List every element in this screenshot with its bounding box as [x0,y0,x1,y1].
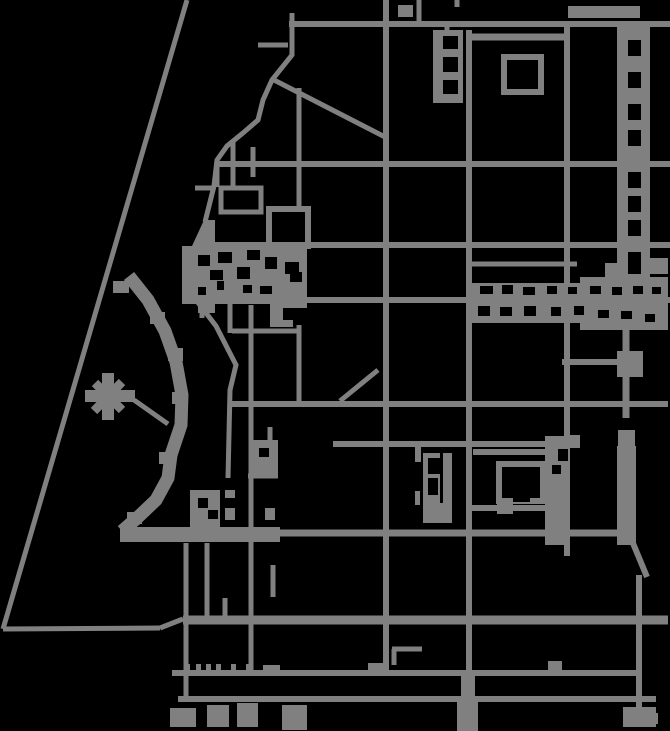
block-gap [628,172,641,188]
block-gap [574,306,584,315]
building-block [120,527,280,542]
block-gap [551,307,561,316]
building-block [461,673,475,700]
block-gap [428,458,440,474]
block-gap [198,287,206,295]
building-block [265,508,275,520]
building-block [605,263,618,287]
block-gap [247,250,260,260]
block-gap [217,281,224,290]
building-block [497,504,513,514]
building-block [237,703,258,727]
building-block [206,664,211,673]
block-gap [590,286,601,294]
block-gap [652,287,661,294]
building-block [190,490,220,528]
block-gap [598,310,609,318]
street-map [0,0,670,731]
building-block [567,435,580,448]
building-block [263,665,280,673]
block-gap [440,453,443,503]
block-gap [265,257,277,269]
block-gap [260,286,272,294]
block-gap [218,252,232,263]
building-block [207,705,229,727]
map-viewport [0,0,670,731]
block-gap [480,286,493,294]
block-gap [428,478,438,495]
building-block [618,430,635,446]
block-gap [628,104,641,120]
block-gap [513,495,530,502]
block-gap [621,311,632,319]
building-block [168,348,183,361]
building-block [246,664,251,673]
building-block [225,490,235,498]
block-gap [552,465,561,474]
block-gap [443,36,458,49]
block-gap [628,40,641,56]
block-gap [259,448,269,457]
building-block [623,707,656,727]
block-gap [628,72,641,88]
block-gap [210,270,223,280]
building-block [648,258,668,274]
block-gap [443,80,458,94]
building-block [127,512,142,524]
road-segment [3,628,160,629]
building-block [196,664,201,673]
building-block [652,713,658,724]
block-gap [523,287,535,295]
building-block [580,277,668,330]
block-gap [547,286,557,294]
building-block [253,440,278,478]
building-block [231,664,236,673]
block-gap [243,285,252,293]
block-gap [645,314,655,322]
building-block [617,26,650,280]
block-gap [208,510,218,519]
building-block [225,508,235,520]
building-block [617,446,636,545]
building-block [185,664,190,673]
block-gap [524,306,536,316]
block-gap [612,287,622,295]
block-gap [628,220,641,236]
building-block [282,705,307,730]
block-gap [198,498,208,508]
block-gap [628,252,641,274]
building-block [548,661,562,673]
building-block [102,373,114,420]
building-block [113,281,129,293]
building-block [150,312,165,324]
block-gap [443,57,458,72]
building-block [172,392,187,404]
block-gap [290,272,302,282]
block-gap [568,287,577,294]
block-gap [500,307,512,316]
block-gap [502,285,513,294]
block-gap [478,306,490,316]
building-block [170,708,196,727]
building-block [216,664,221,673]
block-gap [237,267,250,279]
building-block [415,445,421,462]
block-gap [628,196,641,212]
building-block [368,663,384,673]
building-block [159,452,172,464]
building-block [457,700,478,731]
building-block [398,5,413,17]
building-block [617,351,643,377]
block-gap [628,130,641,146]
building-block [568,6,640,18]
block-gap [558,449,568,461]
block-gap [633,286,643,294]
block-gap [198,255,210,266]
building-block [415,491,420,505]
